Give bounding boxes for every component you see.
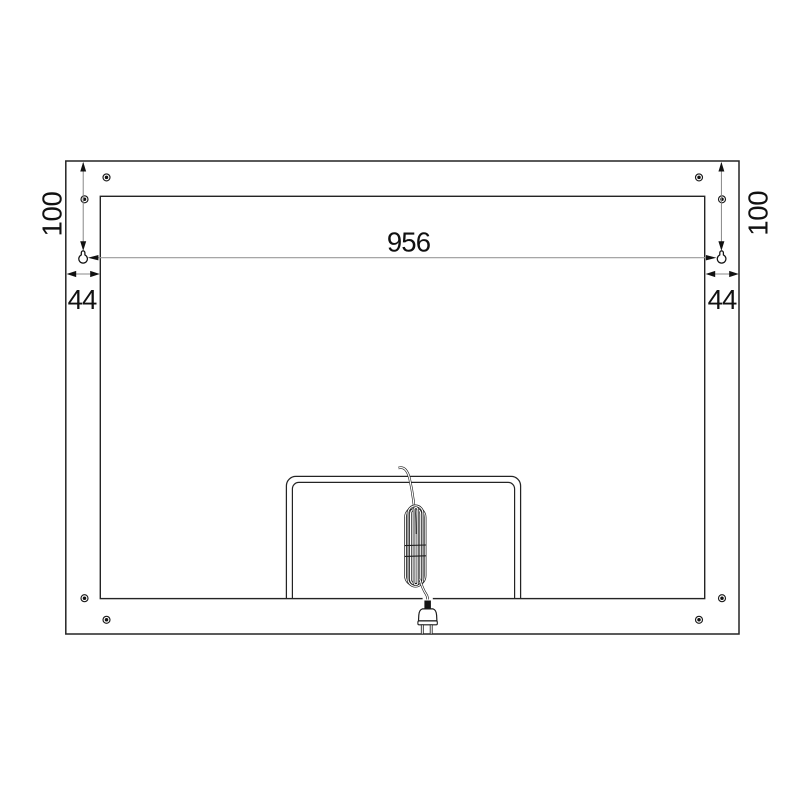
- svg-text:44: 44: [708, 284, 737, 315]
- svg-text:100: 100: [36, 192, 67, 237]
- svg-text:956: 956: [387, 227, 431, 258]
- svg-text:100: 100: [743, 191, 774, 236]
- svg-text:44: 44: [68, 284, 97, 315]
